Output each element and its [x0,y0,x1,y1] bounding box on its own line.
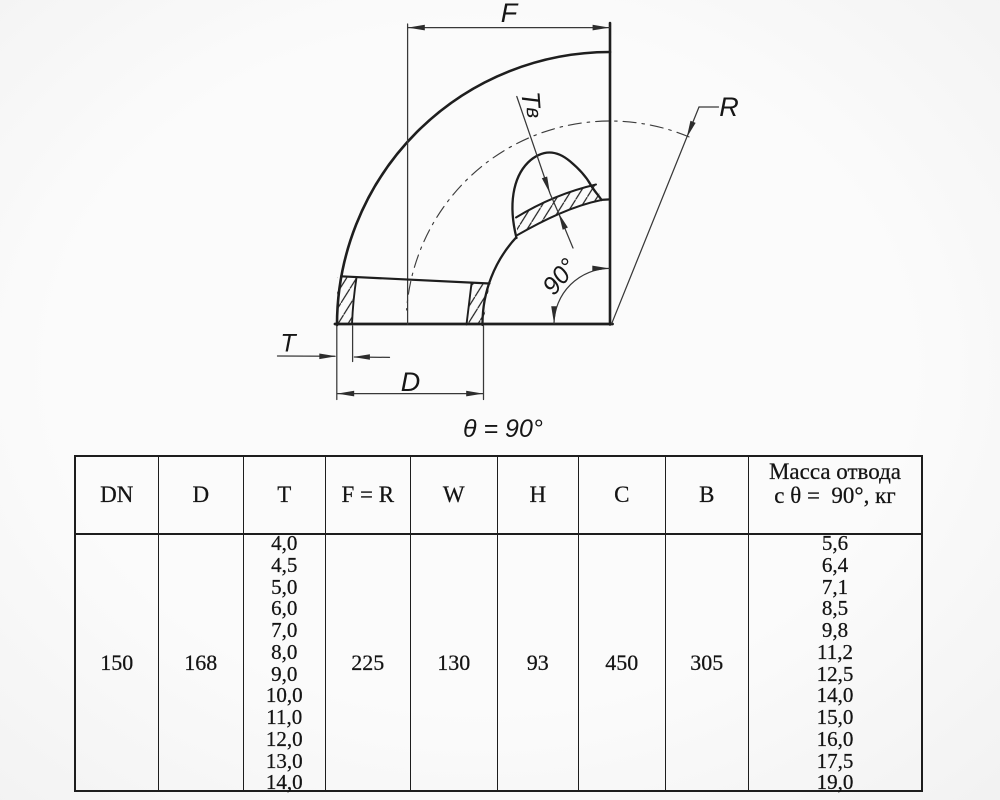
svg-text:Тв: Тв [516,90,548,119]
svg-text:90°: 90° [537,253,583,300]
svg-text:θ = 90°: θ = 90° [463,415,543,443]
svg-text:F: F [501,0,519,28]
svg-text:T: T [280,330,297,358]
svg-text:D: D [401,367,421,397]
svg-text:R: R [719,92,739,122]
